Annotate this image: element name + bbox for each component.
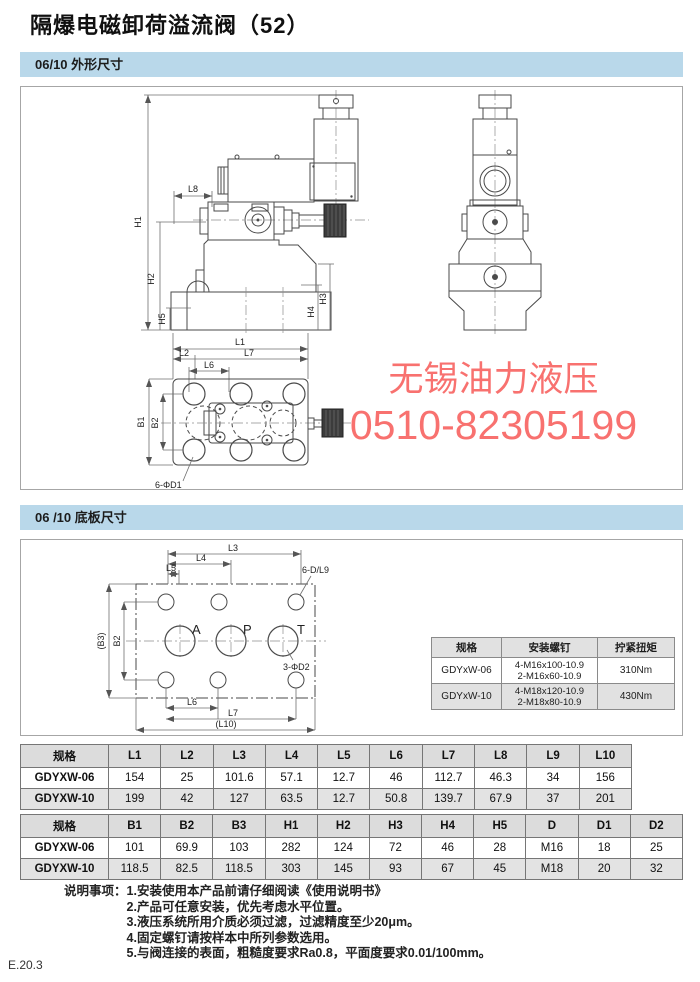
baseplate-view: A P T L3 L4 L5 6-D/L9 3-ΦD2 xyxy=(96,543,329,730)
dim-label-l1: L1 xyxy=(235,337,245,347)
dim-label-l10: (L10) xyxy=(215,719,236,729)
valve-body xyxy=(208,240,316,292)
dim-label-h3: H3 xyxy=(318,293,328,305)
header-cell: H2 xyxy=(317,815,369,838)
header-cell: D xyxy=(526,815,578,838)
adjust-knob xyxy=(324,204,346,237)
header-cell: L10 xyxy=(579,745,631,768)
header-cell: B2 xyxy=(161,815,213,838)
data-cell: 18 xyxy=(578,838,630,859)
dim-label-h1: H1 xyxy=(133,216,143,228)
spec-cell: GDYxW-10 xyxy=(432,684,502,710)
header-cell: H3 xyxy=(369,815,421,838)
table-row: GDYXW-10 199 42 127 63.5 12.7 50.8 139.7… xyxy=(21,789,632,810)
dim-label-b3: (B3) xyxy=(96,632,106,649)
l-dimension-table: 规格 L1 L2 L3 L4 L5 L6 L7 L8 L9 L10 GDYXW-… xyxy=(20,744,632,810)
dim-label-l3: L3 xyxy=(228,543,238,553)
header-cell: L3 xyxy=(213,745,265,768)
header-cell: L9 xyxy=(527,745,579,768)
port-label-a: A xyxy=(192,622,201,637)
screw-spec: 2-M18x80-10.9 xyxy=(502,697,597,708)
table-row: GDYxW-10 4-M18x120-10.9 2-M18x80-10.9 43… xyxy=(432,684,675,710)
screw-spec: 4-M18x120-10.9 xyxy=(502,686,597,697)
dim-label-l2: L2 xyxy=(179,348,189,358)
watermark-company: 无锡油力液压 xyxy=(321,359,666,401)
header-cell: 规格 xyxy=(432,638,502,658)
mounting-screw-table: 规格 安装螺钉 拧紧扭矩 GDYxW-06 4-M16x100-10.9 2-M… xyxy=(431,637,675,710)
data-cell: M16 xyxy=(526,838,578,859)
port-label-p: P xyxy=(243,622,252,637)
data-cell: 25 xyxy=(630,838,682,859)
watermark: 无锡油力液压 0510-82305199 xyxy=(321,359,666,449)
spec-cell: GDYXW-06 xyxy=(21,768,109,789)
data-cell: 45 xyxy=(474,859,526,880)
dim-label-l6: L6 xyxy=(204,360,214,370)
outline-drawing-panel: H1 H2 H5 L8 H3 H4 xyxy=(20,86,683,490)
data-cell: 82.5 xyxy=(161,859,213,880)
data-cell: 282 xyxy=(265,838,317,859)
data-cell: 127 xyxy=(213,789,265,810)
solenoid-body xyxy=(228,159,314,202)
note-item: 2.产品可任意安装，优先考虑水平位置。 xyxy=(127,900,492,916)
hole-note-6dl9: 6-D/L9 xyxy=(302,565,329,575)
data-cell: 46 xyxy=(370,768,422,789)
watermark-phone: 0510-82305199 xyxy=(321,401,666,449)
table-row: 规格 B1 B2 B3 H1 H2 H3 H4 H5 D D1 D2 xyxy=(21,815,683,838)
data-cell: 156 xyxy=(579,768,631,789)
header-cell: L8 xyxy=(475,745,527,768)
note-item: 5.与阀连接的表面，粗糙度要求Ra0.8，平面度要求0.01/100mm。 xyxy=(127,946,492,962)
dim-label-h5: H5 xyxy=(157,313,167,325)
dim-label-b2: B2 xyxy=(150,417,160,428)
port-label-t: T xyxy=(297,622,305,637)
note-item: 1.安装使用本产品前请仔细阅读《使用说明书》 xyxy=(127,884,492,900)
note-item: 4.固定螺钉请按样本中所列参数选用。 xyxy=(127,931,492,947)
spec-cell: GDYXW-10 xyxy=(21,859,109,880)
data-cell: 101 xyxy=(109,838,161,859)
data-cell: 124 xyxy=(317,838,369,859)
section-heading-baseplate: 06 /10 底板尺寸 xyxy=(20,505,683,530)
notes-items: 1.安装使用本产品前请仔细阅读《使用说明书》 2.产品可任意安装，优先考虑水平位… xyxy=(127,884,492,962)
data-cell: 50.8 xyxy=(370,789,422,810)
notes-label: 说明事项： xyxy=(64,884,127,962)
header-cell: L4 xyxy=(265,745,317,768)
screws-cell: 4-M16x100-10.9 2-M16x60-10.9 xyxy=(502,658,598,684)
data-cell: 32 xyxy=(630,859,682,880)
data-cell: 67.9 xyxy=(475,789,527,810)
data-cell: 112.7 xyxy=(422,768,474,789)
header-cell: D2 xyxy=(630,815,682,838)
dim-label-h2: H2 xyxy=(146,273,156,285)
hole-note-6d1: 6-ΦD1 xyxy=(155,480,182,489)
dim-label-b2-plate: B2 xyxy=(112,635,122,646)
torque-cell: 430Nm xyxy=(598,684,675,710)
screws-cell: 4-M18x120-10.9 2-M18x80-10.9 xyxy=(502,684,598,710)
data-cell: 25 xyxy=(161,768,213,789)
screw-spec: 2-M16x60-10.9 xyxy=(502,671,597,682)
data-cell: 63.5 xyxy=(265,789,317,810)
header-cell: 拧紧扭矩 xyxy=(598,638,675,658)
header-cell: H5 xyxy=(474,815,526,838)
dim-label-l7-plate: L7 xyxy=(228,708,238,718)
spec-cell: GDYxW-06 xyxy=(432,658,502,684)
data-cell: 69.9 xyxy=(161,838,213,859)
table-row: GDYXW-06 101 69.9 103 282 124 72 46 28 M… xyxy=(21,838,683,859)
data-cell: 101.6 xyxy=(213,768,265,789)
header-cell: L6 xyxy=(370,745,422,768)
data-cell: 46 xyxy=(422,838,474,859)
header-cell: H1 xyxy=(265,815,317,838)
header-cell: H4 xyxy=(422,815,474,838)
header-cell: L2 xyxy=(161,745,213,768)
data-cell: 12.7 xyxy=(318,768,370,789)
page-number: E.20.3 xyxy=(8,958,43,972)
table-row: GDYXW-10 118.5 82.5 118.5 303 145 93 67 … xyxy=(21,859,683,880)
side-view xyxy=(449,90,541,337)
spec-cell: GDYXW-06 xyxy=(21,838,109,859)
header-cell: L1 xyxy=(109,745,161,768)
base-plate-top xyxy=(173,379,308,465)
bhd-dimension-table: 规格 B1 B2 B3 H1 H2 H3 H4 H5 D D1 D2 GDYXW… xyxy=(20,814,683,880)
page-title: 隔爆电磁卸荷溢流阀（52） xyxy=(30,8,309,40)
header-cell: B1 xyxy=(109,815,161,838)
data-cell: 118.5 xyxy=(109,859,161,880)
table-row: GDYxW-06 4-M16x100-10.9 2-M16x60-10.9 31… xyxy=(432,658,675,684)
data-cell: 37 xyxy=(527,789,579,810)
screw-spec: 4-M16x100-10.9 xyxy=(502,660,597,671)
data-cell: 118.5 xyxy=(213,859,265,880)
dim-label-l8: L8 xyxy=(188,184,198,194)
data-cell: 57.1 xyxy=(265,768,317,789)
data-cell: 201 xyxy=(579,789,631,810)
header-cell: 规格 xyxy=(21,745,109,768)
data-cell: 199 xyxy=(109,789,161,810)
dim-label-b1: B1 xyxy=(136,416,146,427)
data-cell: 72 xyxy=(369,838,421,859)
data-cell: 12.7 xyxy=(318,789,370,810)
data-cell: 28 xyxy=(474,838,526,859)
notes: 说明事项： 1.安装使用本产品前请仔细阅读《使用说明书》 2.产品可任意安装，优… xyxy=(64,884,491,962)
data-cell: 139.7 xyxy=(422,789,474,810)
header-cell: 规格 xyxy=(21,815,109,838)
spec-cell: GDYXW-10 xyxy=(21,789,109,810)
header-cell: L5 xyxy=(318,745,370,768)
front-view: H1 H2 H5 L8 H3 H4 xyxy=(133,90,369,335)
header-cell: D1 xyxy=(578,815,630,838)
dim-label-l4: L4 xyxy=(196,553,206,563)
data-cell: 34 xyxy=(527,768,579,789)
table-row: 规格 L1 L2 L3 L4 L5 L6 L7 L8 L9 L10 xyxy=(21,745,632,768)
table-row: GDYXW-06 154 25 101.6 57.1 12.7 46 112.7… xyxy=(21,768,632,789)
data-cell: M18 xyxy=(526,859,578,880)
dim-label-l7: L7 xyxy=(244,348,254,358)
section-heading-outline: 06/10 外形尺寸 xyxy=(20,52,683,77)
data-cell: 93 xyxy=(369,859,421,880)
data-cell: 103 xyxy=(213,838,265,859)
data-cell: 42 xyxy=(161,789,213,810)
torque-cell: 310Nm xyxy=(598,658,675,684)
hole-note-3d2: 3-ΦD2 xyxy=(283,662,310,672)
data-cell: 67 xyxy=(422,859,474,880)
note-item: 3.液压系统所用介质必须过滤，过滤精度至少20μm。 xyxy=(127,915,492,931)
dim-label-l5: L5 xyxy=(166,563,176,573)
data-cell: 145 xyxy=(317,859,369,880)
table-row: 规格 安装螺钉 拧紧扭矩 xyxy=(432,638,675,658)
data-cell: 154 xyxy=(109,768,161,789)
data-cell: 46.3 xyxy=(475,768,527,789)
data-cell: 303 xyxy=(265,859,317,880)
dim-label-l6-plate: L6 xyxy=(187,697,197,707)
data-cell: 20 xyxy=(578,859,630,880)
header-cell: L7 xyxy=(422,745,474,768)
header-cell: 安装螺钉 xyxy=(502,638,598,658)
dim-label-h4: H4 xyxy=(306,306,316,318)
header-cell: B3 xyxy=(213,815,265,838)
nameplate xyxy=(310,163,355,200)
baseplate-panel: A P T L3 L4 L5 6-D/L9 3-ΦD2 xyxy=(20,539,683,736)
